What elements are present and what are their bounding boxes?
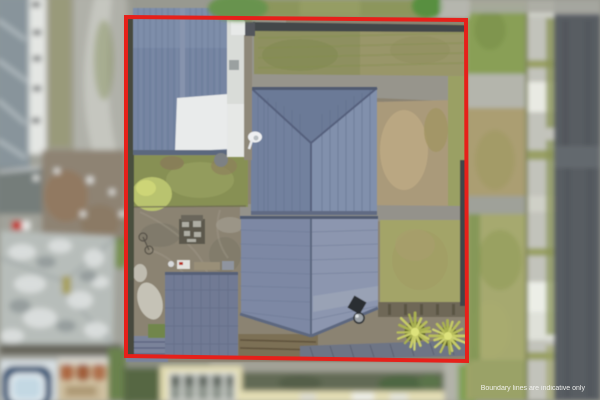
- svg-text:Boundary lines are indicative: Boundary lines are indicative only: [481, 385, 586, 392]
